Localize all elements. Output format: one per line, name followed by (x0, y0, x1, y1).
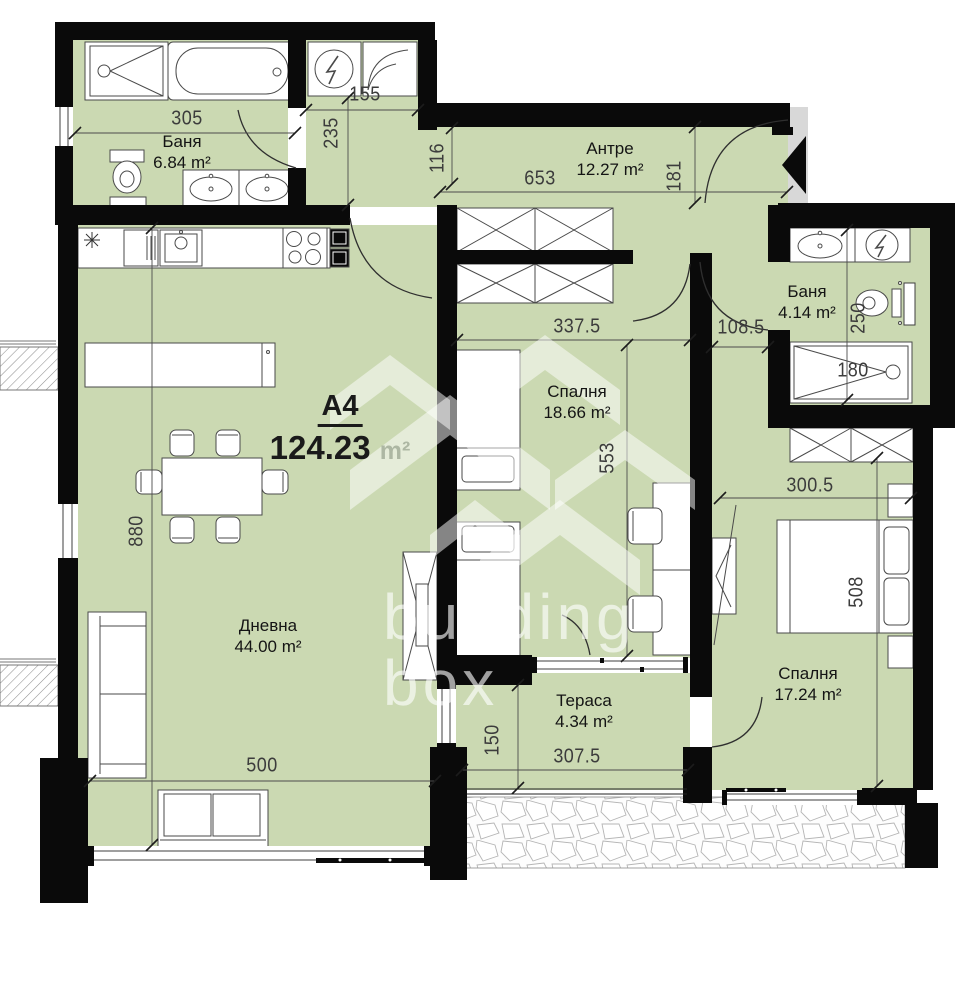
dim-shower-length: 180 (837, 360, 868, 383)
dim-hall-depth: 181 (664, 160, 687, 191)
shaft-niche (904, 283, 915, 325)
fridge-icon (84, 232, 100, 248)
dim-corridor-width: 116 (427, 143, 450, 173)
window-bath1-left (55, 103, 73, 150)
toilet-icon (892, 289, 901, 317)
room-label-bedroom2: Спалня17.24 m² (774, 663, 841, 705)
window-living-bottom (88, 846, 430, 866)
chair-icon (262, 470, 288, 494)
room-label-entry-hall: Антре12.27 m² (576, 138, 643, 180)
stove-icon (283, 228, 327, 268)
kitchen-island (85, 343, 275, 387)
room-label-terrace: Тераса4.34 m² (555, 690, 613, 732)
unit-title: А4 124.23 m² (270, 390, 411, 467)
room-label-living: Дневна44.00 m² (234, 615, 301, 657)
floor-plan-svg (0, 0, 955, 1000)
total-area: 124.23 m² (270, 429, 411, 467)
room-label-bath2: Баня4.14 m² (778, 281, 836, 323)
window-terrace-top (532, 657, 688, 673)
chair-icon (170, 517, 194, 543)
dim-bath2-depth: 250 (848, 302, 871, 333)
dim-living-depth: 880 (126, 515, 149, 546)
chair-icon (170, 430, 194, 456)
area-unit: m² (380, 437, 411, 465)
dim-passage-width: 108.5 (717, 317, 764, 340)
nightstand-icon (888, 636, 913, 668)
pillow-icon (884, 527, 909, 574)
shower-drain-icon (98, 65, 110, 77)
room-label-bedroom1: Спалня18.66 m² (543, 381, 610, 423)
pillow-icon (884, 578, 909, 625)
dim-corridor-depth: 235 (321, 117, 344, 148)
dishwasher-icon (124, 230, 158, 266)
dim-bedroom2-width: 300.5 (786, 475, 833, 498)
dim-bath1-width: 305 (171, 108, 202, 131)
sofa-icon (88, 612, 146, 778)
dim-terrace-depth: 150 (482, 724, 505, 755)
dining-table (162, 458, 262, 515)
dim-bedroom1-width: 337.5 (553, 316, 600, 339)
dim-bedroom1-depth: 553 (597, 442, 620, 473)
window-bedroom2-bottom (722, 788, 862, 805)
toilet-icon (110, 150, 144, 162)
unit-label: А4 (317, 390, 362, 427)
window-living-left (58, 500, 78, 562)
watermark-brand-line2: box (383, 651, 498, 715)
dim-living-width: 500 (246, 755, 277, 778)
chair-icon (216, 517, 240, 543)
shower-drain-icon (886, 365, 900, 379)
watermark-brand-line1: building (383, 585, 636, 649)
dim-terrace-width: 307.5 (553, 746, 600, 769)
floor-plan: А4 124.23 m² Баня6.84 m² Антре12.27 m² Б… (0, 0, 955, 1000)
chair-icon (216, 430, 240, 456)
exterior-paving (465, 797, 905, 868)
dim-bedroom2-depth: 508 (846, 576, 869, 607)
room-label-bath1: Баня6.84 m² (153, 131, 211, 173)
dim-nook-width: 155 (349, 84, 380, 107)
chair-icon (136, 470, 162, 494)
dim-hall-width: 653 (524, 168, 555, 191)
adjacent-structure-hatching (0, 341, 58, 706)
boiler-icon (855, 228, 910, 262)
